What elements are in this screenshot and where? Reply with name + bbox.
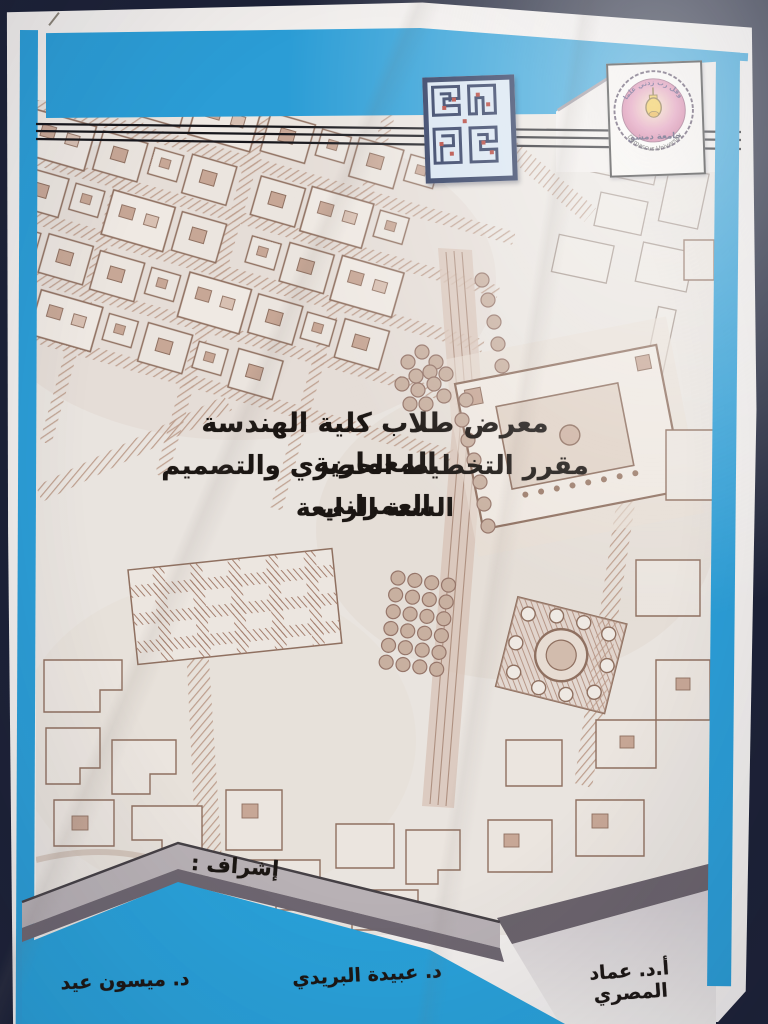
- kufic-calligraphy-emblem: [422, 74, 518, 183]
- damascus-university-logo: وقل رب زدني علما جامعة دمشق Damascus Uni…: [606, 60, 706, 177]
- photo-of-poster: وقل رب زدني علما جامعة دمشق Damascus Uni…: [0, 0, 768, 1024]
- poster-title-line3: السنة الرابعة: [250, 489, 500, 527]
